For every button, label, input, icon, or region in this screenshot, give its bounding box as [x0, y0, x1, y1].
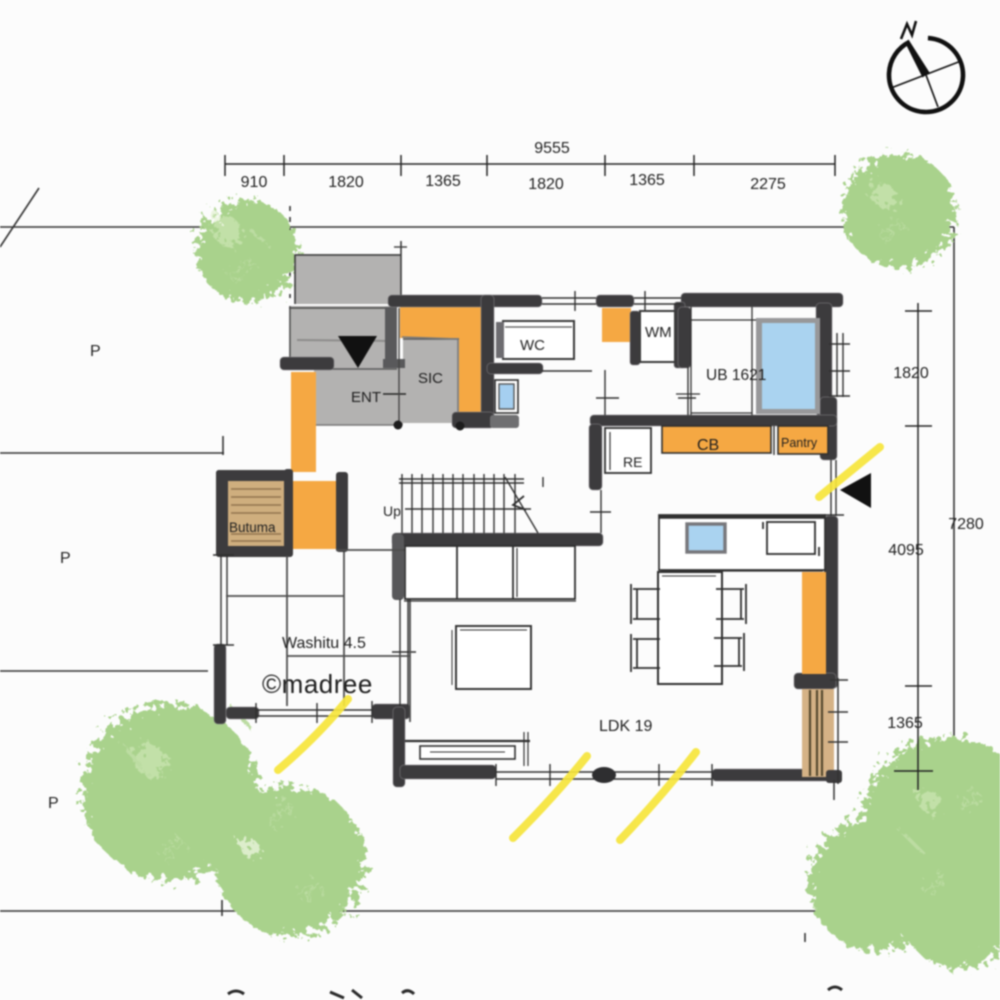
svg-text:©madree: ©madree — [262, 669, 373, 699]
svg-text:LDK 19: LDK 19 — [599, 718, 652, 735]
svg-text:ENT: ENT — [351, 389, 381, 406]
svg-text:7280: 7280 — [948, 516, 984, 533]
svg-text:P: P — [90, 343, 101, 360]
svg-text:1820: 1820 — [893, 365, 929, 382]
svg-text:1365: 1365 — [887, 715, 923, 732]
svg-text:Pantry: Pantry — [781, 436, 818, 450]
svg-text:1365: 1365 — [629, 172, 665, 189]
svg-text:UB 1621: UB 1621 — [706, 367, 766, 384]
svg-text:1820: 1820 — [328, 174, 364, 191]
svg-text:910: 910 — [241, 174, 268, 191]
svg-text:Up: Up — [383, 503, 401, 519]
svg-text:4095: 4095 — [888, 542, 924, 559]
svg-text:P: P — [48, 795, 59, 812]
svg-text:P: P — [60, 550, 71, 567]
svg-text:2275: 2275 — [750, 176, 786, 193]
svg-text:Butuma: Butuma — [229, 520, 276, 535]
svg-text:1820: 1820 — [528, 176, 564, 193]
svg-text:Washitu 4.5: Washitu 4.5 — [282, 635, 366, 652]
svg-text:1365: 1365 — [425, 173, 461, 190]
svg-text:RE: RE — [623, 454, 642, 470]
svg-text:9555: 9555 — [534, 140, 570, 157]
svg-text:WM: WM — [645, 324, 672, 341]
svg-text:CB: CB — [697, 437, 719, 454]
svg-text:SIC: SIC — [418, 370, 443, 387]
svg-text:WC: WC — [520, 337, 545, 354]
